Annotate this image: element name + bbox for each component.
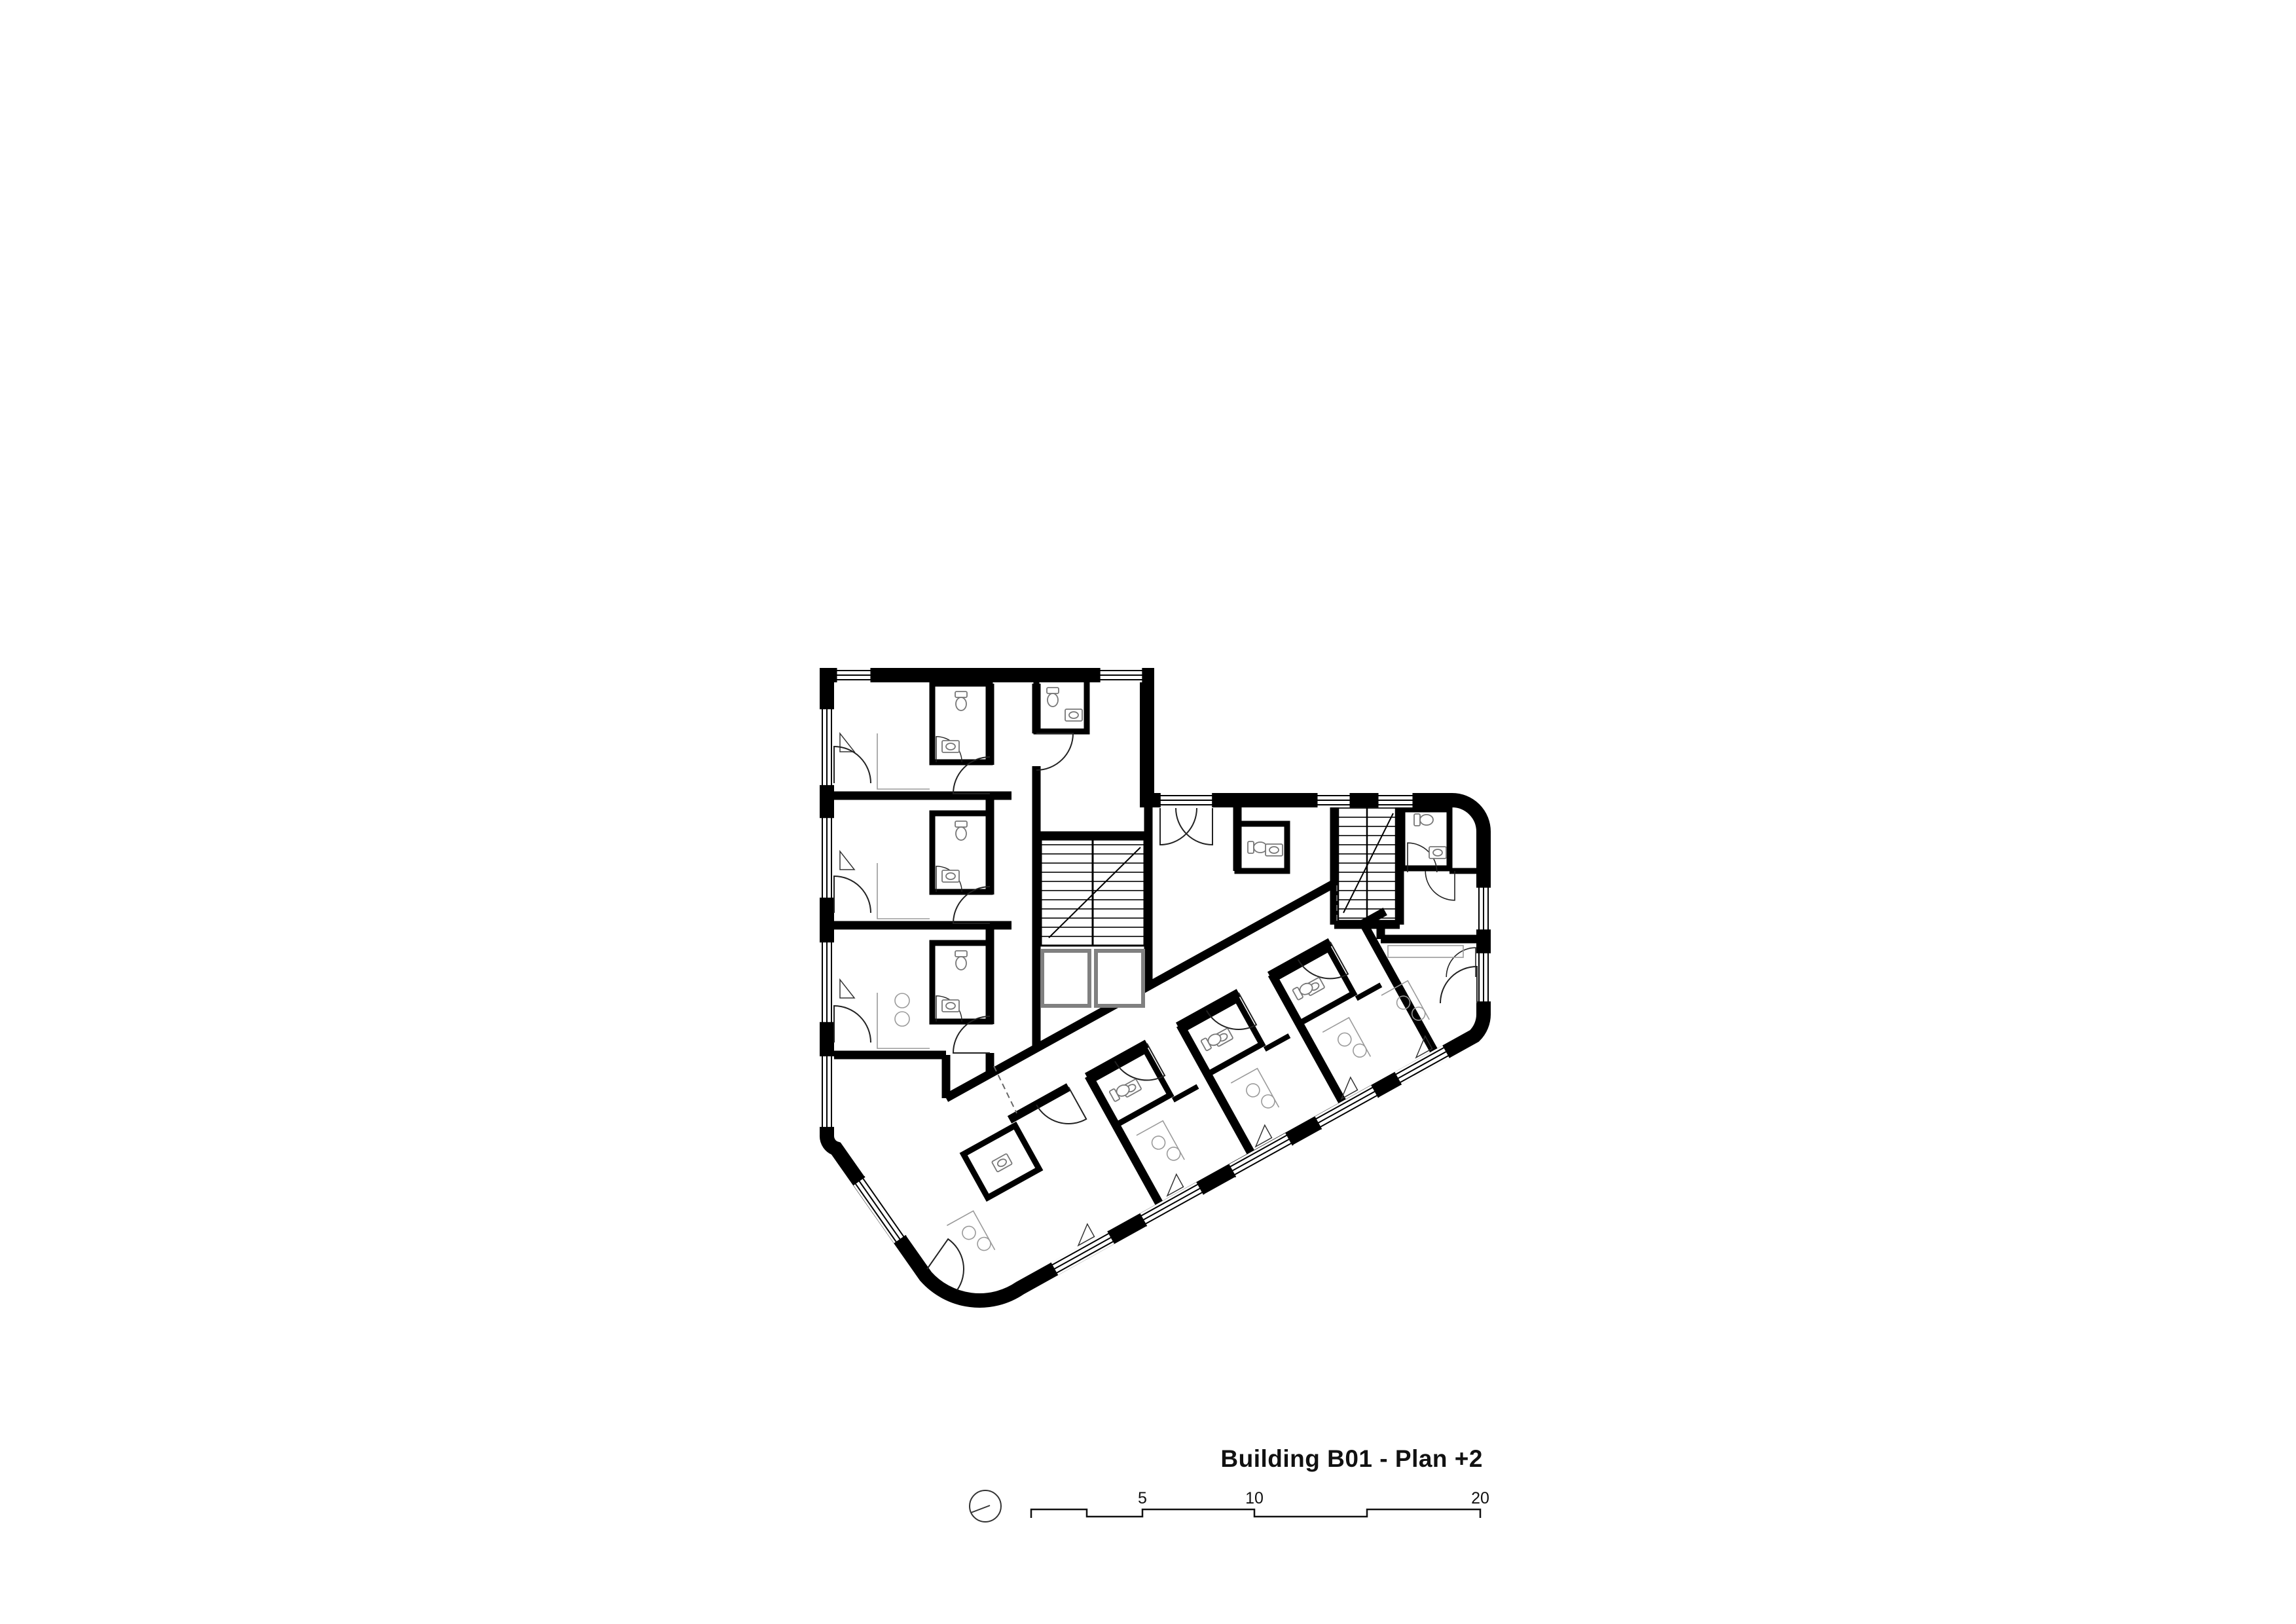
bathroom-pods [932, 679, 1484, 1022]
stairwell-2 [1338, 807, 1396, 921]
plan-title: Building B01 - Plan +2 [1220, 1445, 1483, 1472]
scale-label-5: 5 [1138, 1489, 1147, 1507]
band-pods [962, 949, 1355, 1198]
north-indicator-icon [970, 1490, 1001, 1522]
building-plan [820, 668, 1491, 1304]
scale-label-20: 20 [1471, 1489, 1489, 1507]
elevator-shafts [1042, 951, 1143, 1006]
stairwell-1 [1041, 840, 1144, 946]
floor-plan-svg: Building B01 - Plan +2 5 10 20 [0, 0, 2296, 1624]
scale-bar [1031, 1509, 1480, 1518]
studio-band [917, 912, 1459, 1304]
scale-label-10: 10 [1245, 1489, 1264, 1507]
sheet: Building B01 - Plan +2 5 10 20 [0, 0, 2296, 1624]
